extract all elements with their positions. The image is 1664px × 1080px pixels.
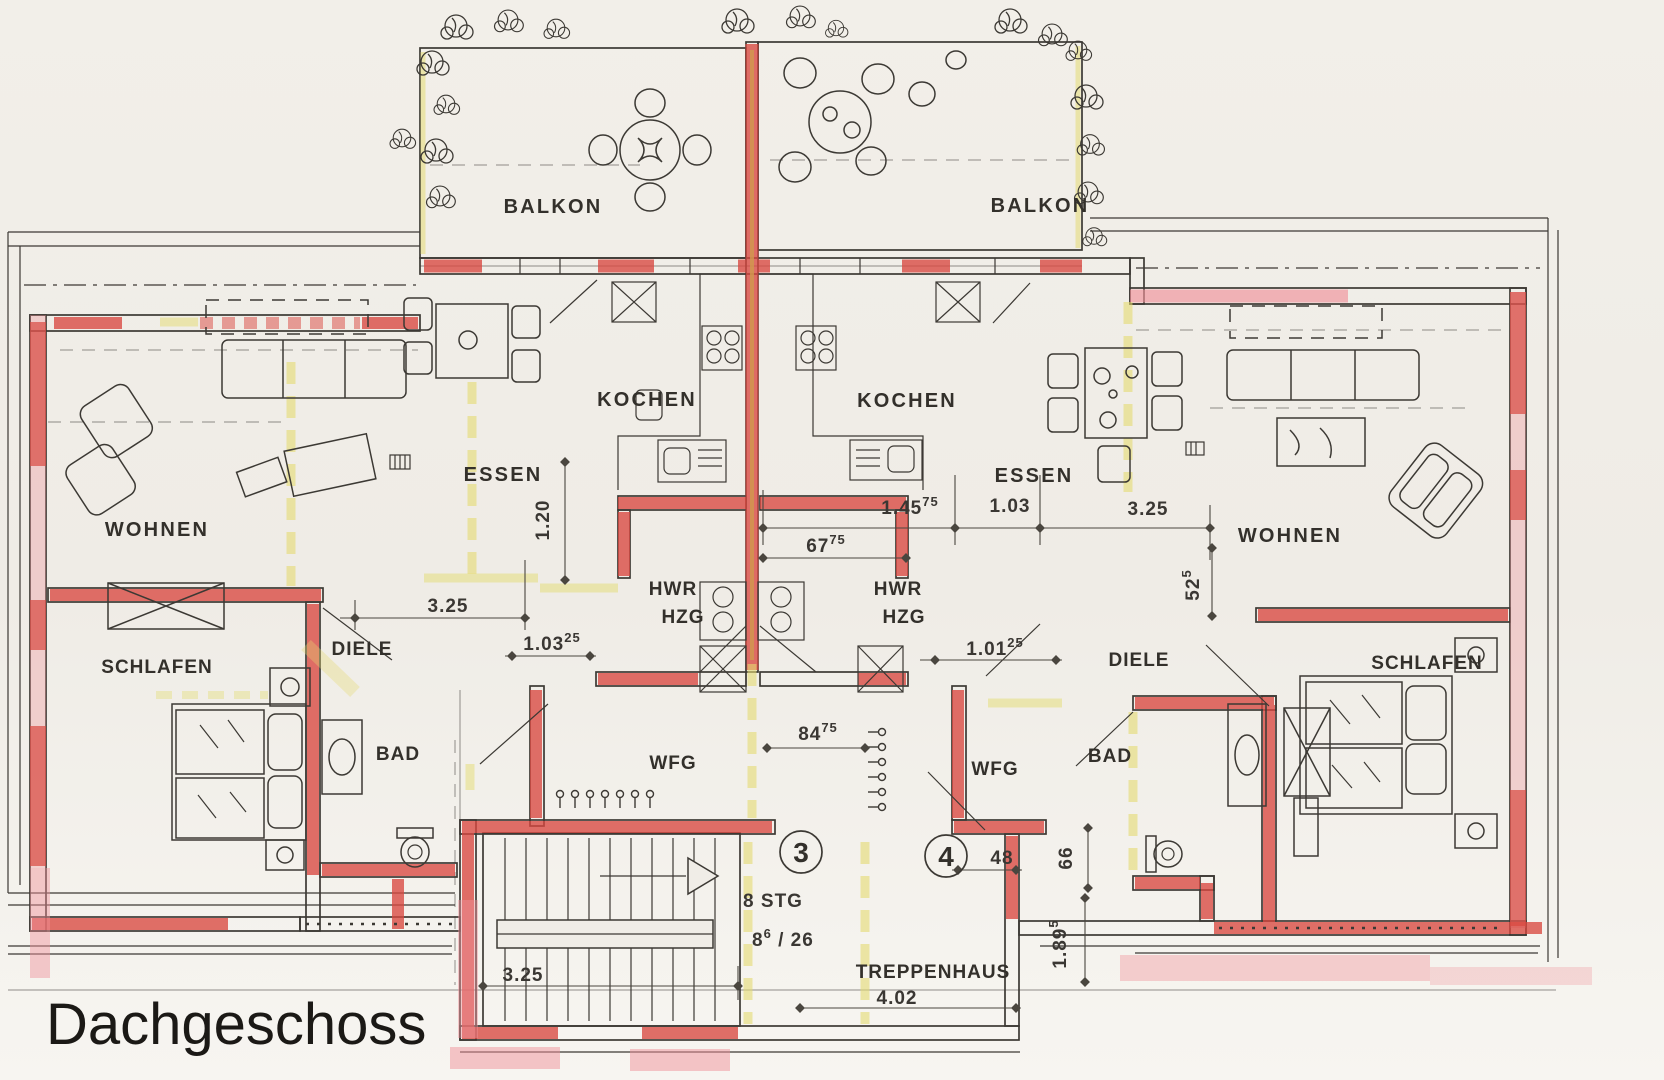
radiator-icon — [390, 455, 410, 469]
living-room-right — [1186, 306, 1487, 543]
bathroom-right — [1146, 704, 1266, 872]
dim-1-01-25: 1.0125 — [966, 635, 1023, 660]
dim-4-02: 4.02 — [877, 988, 918, 1009]
room-label-wfg-right: WFG — [971, 759, 1018, 780]
toilet-icon — [1146, 836, 1182, 872]
dim-48: 48 — [990, 848, 1013, 869]
bathroom-left — [322, 720, 433, 867]
room-label-wohnen-left: WOHNEN — [105, 519, 209, 541]
apartment-number-left: 3 — [780, 831, 822, 873]
dining-table-left — [404, 298, 540, 382]
room-label-hwr-left: HWR — [649, 579, 697, 600]
dining-table-right — [1048, 348, 1182, 482]
dim-3-25-left: 3.25 — [428, 596, 469, 617]
living-room-left — [62, 300, 410, 519]
bedroom-left — [108, 583, 310, 870]
dim-84-75: 8475 — [798, 720, 838, 745]
room-label-hzg-right: HZG — [882, 607, 925, 628]
room-label-kochen-left: KOCHEN — [597, 389, 697, 411]
unit-number: 3 — [793, 837, 809, 868]
room-label-balkon-right: BALKON — [991, 195, 1090, 217]
radiator-icon — [1186, 442, 1204, 455]
room-label-wfg-left: WFG — [649, 753, 696, 774]
balcony-right-furniture — [779, 51, 966, 182]
room-label-schlafen-right: SCHLAFEN — [1371, 653, 1482, 674]
dim-1-03-right: 1.03 — [990, 496, 1031, 517]
room-label-kochen-right: KOCHEN — [857, 390, 957, 412]
toilet-icon — [397, 828, 433, 867]
kitchen-left — [612, 274, 746, 490]
room-label-schlafen-left: SCHLAFEN — [101, 657, 212, 678]
room-label-diele-right: DIELE — [1109, 650, 1170, 671]
room-label-wohnen-right: WOHNEN — [1238, 525, 1342, 547]
room-label-hwr-right: HWR — [874, 579, 922, 600]
apartment-number-right: 4 — [925, 835, 967, 877]
room-label-bad-left: BAD — [376, 744, 420, 765]
dim-66: 66 — [1056, 846, 1077, 869]
room-label-hzg-left: HZG — [661, 607, 704, 628]
floor-plan-drawing: 3 4 BALKON BALKON KOCHEN KOCHEN ESSEN ES… — [0, 0, 1664, 1080]
page-title: Dachgeschoss — [46, 992, 426, 1057]
room-label-essen-right: ESSEN — [995, 465, 1074, 487]
dim-1-03-left: 1.0325 — [523, 630, 580, 655]
yellow-highlighted-walls — [156, 46, 1133, 1024]
coat-hooks — [557, 729, 886, 811]
dim-3-25-bottom: 3.25 — [503, 965, 544, 986]
unit-number: 4 — [938, 841, 954, 872]
kitchen-right — [760, 274, 980, 490]
balcony-left-furniture — [589, 89, 711, 211]
room-label-bad-right: BAD — [1088, 746, 1132, 767]
scanned-floor-plan: 3 4 BALKON BALKON KOCHEN KOCHEN ESSEN ES… — [0, 0, 1664, 1080]
stair-direction-arrow-icon — [688, 858, 718, 894]
dim-3-25-right: 3.25 — [1128, 499, 1169, 520]
dim-1-20: 1.20 — [533, 500, 554, 541]
dim-1-89-5: 1.895 — [1046, 919, 1071, 968]
dim-1-45-75: 1.4575 — [881, 494, 938, 519]
room-label-essen-left: ESSEN — [464, 464, 543, 486]
stair-count-note: 8 STG — [743, 891, 803, 912]
room-label-treppenhaus: TREPPENHAUS — [856, 962, 1011, 983]
dim-52-5: 525 — [1179, 569, 1204, 600]
room-label-diele-left: DIELE — [332, 639, 393, 660]
room-label-balkon-left: BALKON — [504, 196, 603, 218]
dim-67-75: 6775 — [806, 532, 846, 557]
stair-rise-note: 86 / 26 — [752, 926, 814, 951]
